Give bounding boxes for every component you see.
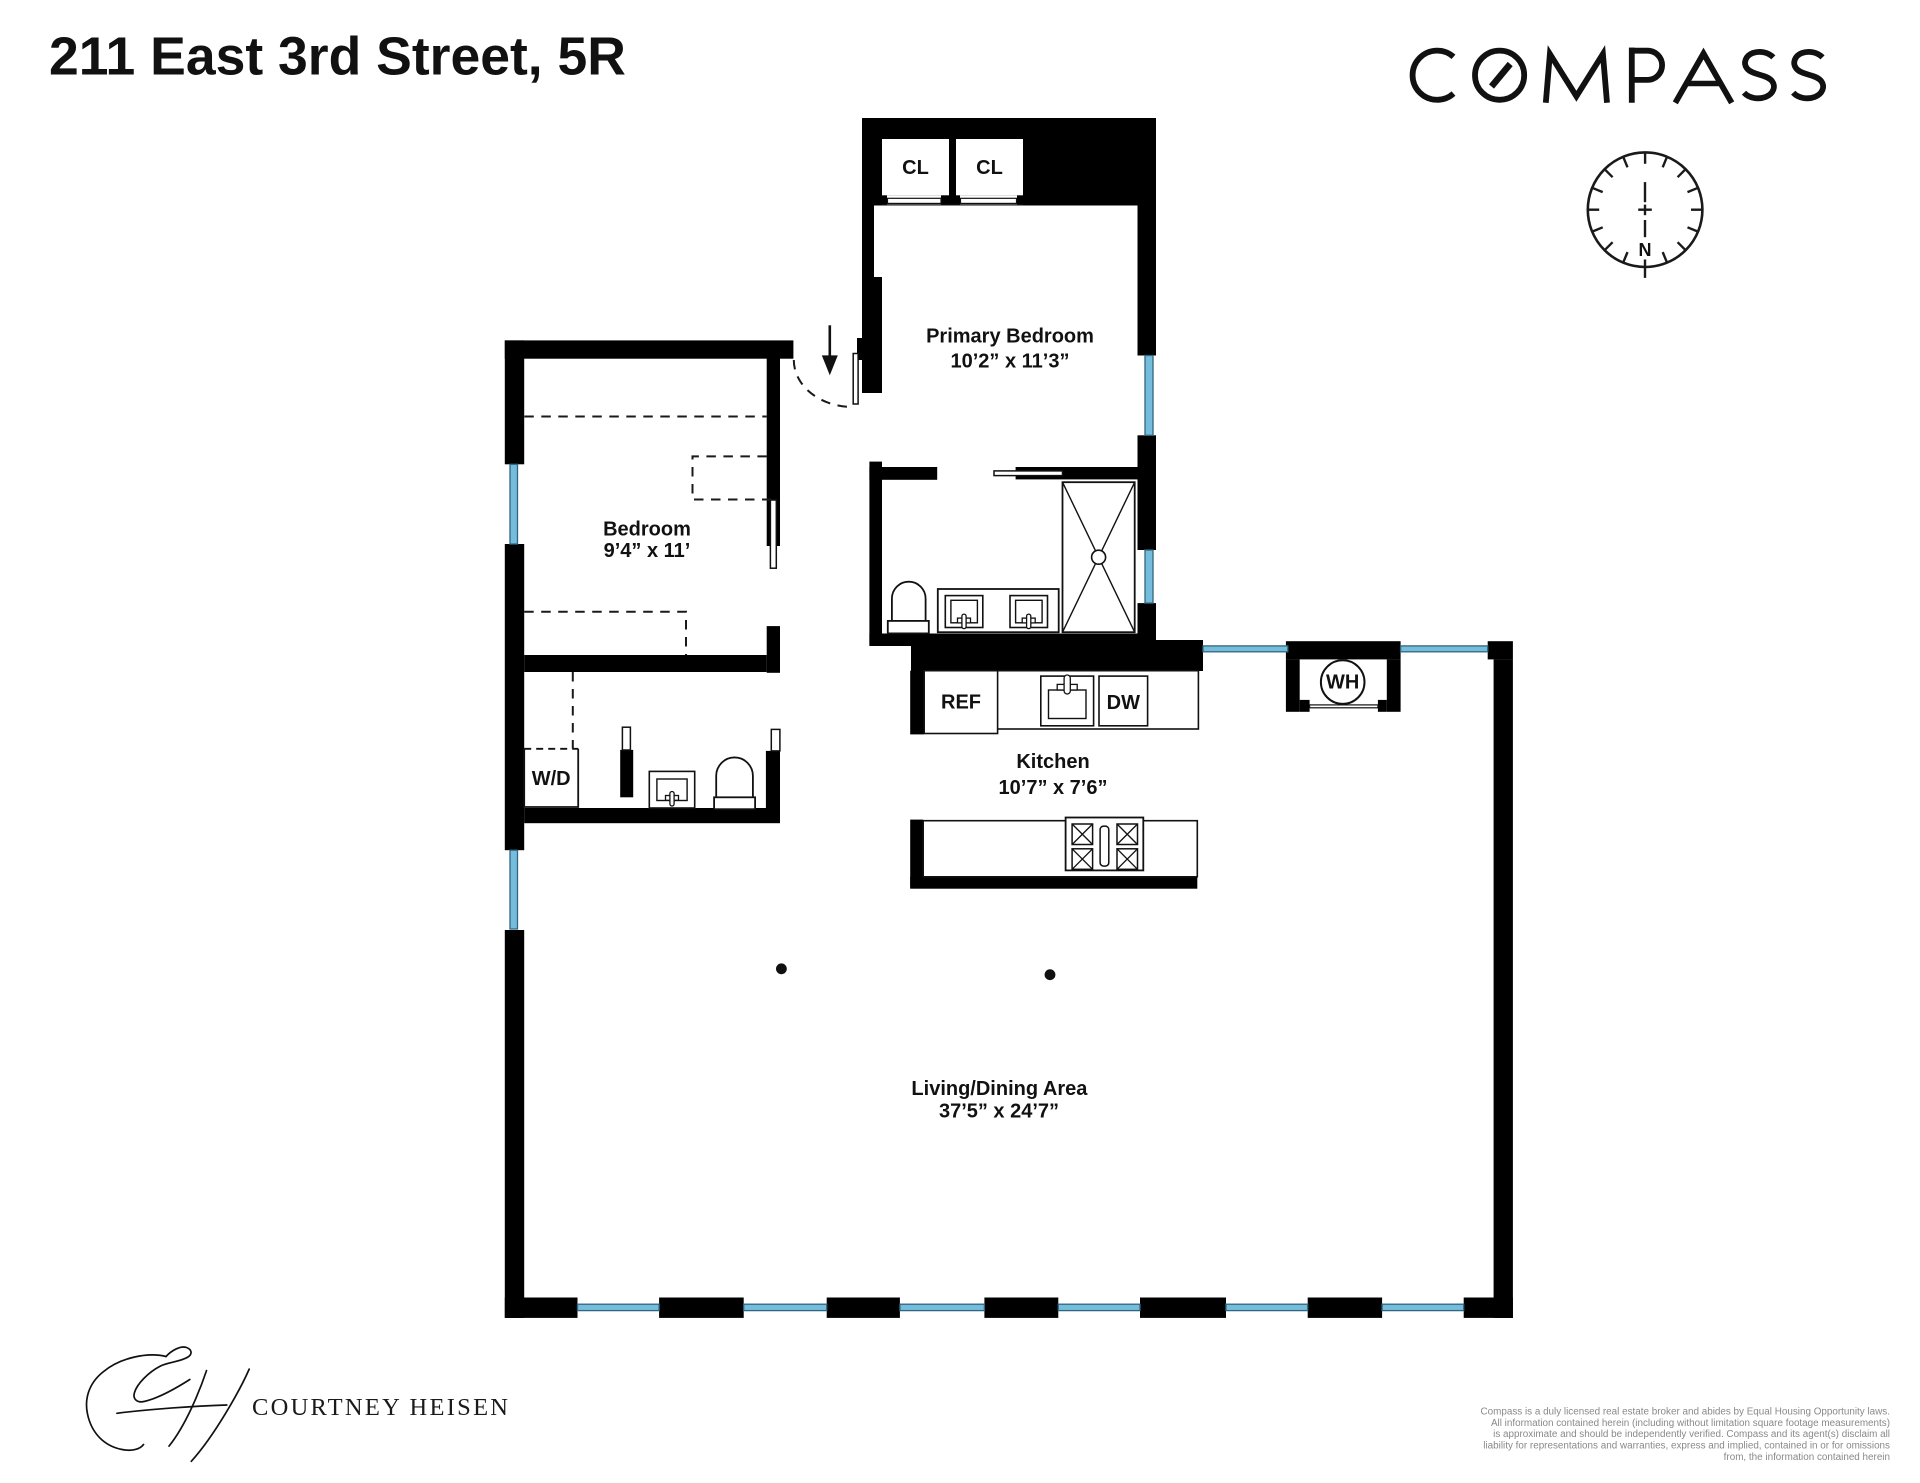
svg-text:Primary Bedroom: Primary Bedroom — [926, 326, 1094, 348]
svg-text:COURTNEY HEISEN: COURTNEY HEISEN — [252, 1394, 510, 1421]
svg-text:REF: REF — [941, 692, 981, 714]
svg-text:Kitchen: Kitchen — [1016, 751, 1089, 773]
svg-text:37’5” x 24’7”: 37’5” x 24’7” — [939, 1100, 1059, 1122]
svg-text:WH: WH — [1326, 672, 1359, 694]
svg-text:liability for representations: liability for representations and warran… — [1483, 1441, 1890, 1452]
svg-text:DW: DW — [1107, 692, 1140, 714]
svg-text:10’7” x 7’6”: 10’7” x 7’6” — [999, 777, 1108, 799]
svg-text:9’4” x 11’: 9’4” x 11’ — [604, 540, 691, 562]
svg-text:Bedroom: Bedroom — [603, 519, 691, 541]
svg-text:All information contained here: All information contained herein (includ… — [1491, 1418, 1890, 1429]
svg-text:211 East 3rd Street, 5R: 211 East 3rd Street, 5R — [49, 28, 626, 87]
svg-text:CL: CL — [902, 157, 929, 179]
svg-text:Compass is a duly licensed rea: Compass is a duly licensed real estate b… — [1481, 1406, 1891, 1417]
svg-text:W/D: W/D — [532, 768, 571, 790]
svg-text:10’2” x 11’3”: 10’2” x 11’3” — [951, 351, 1070, 373]
svg-text:CL: CL — [976, 157, 1003, 179]
svg-text:N: N — [1639, 240, 1652, 260]
svg-text:Living/Dining Area: Living/Dining Area — [911, 1078, 1088, 1100]
svg-text:is approximate and should be i: is approximate and should be independent… — [1493, 1429, 1890, 1440]
svg-text:from, the information containe: from, the information contained herein — [1724, 1452, 1890, 1463]
